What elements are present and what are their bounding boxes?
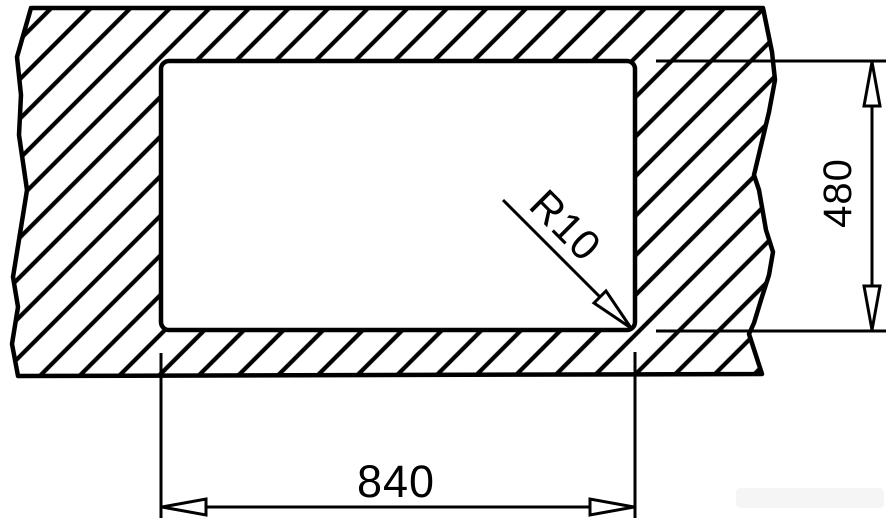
width-arrowhead-left [162,499,206,515]
width-arrowhead-right [590,499,634,515]
height-arrowhead-bottom [864,286,880,330]
drawing-canvas: 840 480 R10 [0,0,888,520]
width-dimension-label: 840 [357,456,435,507]
height-dimension-label: 480 [816,158,860,228]
height-arrowhead-top [864,62,880,106]
cutout-dimension-drawing: 840 480 R10 [0,0,888,520]
line-art-group: 840 480 R10 [12,8,886,518]
watermark-smudge [736,488,884,508]
